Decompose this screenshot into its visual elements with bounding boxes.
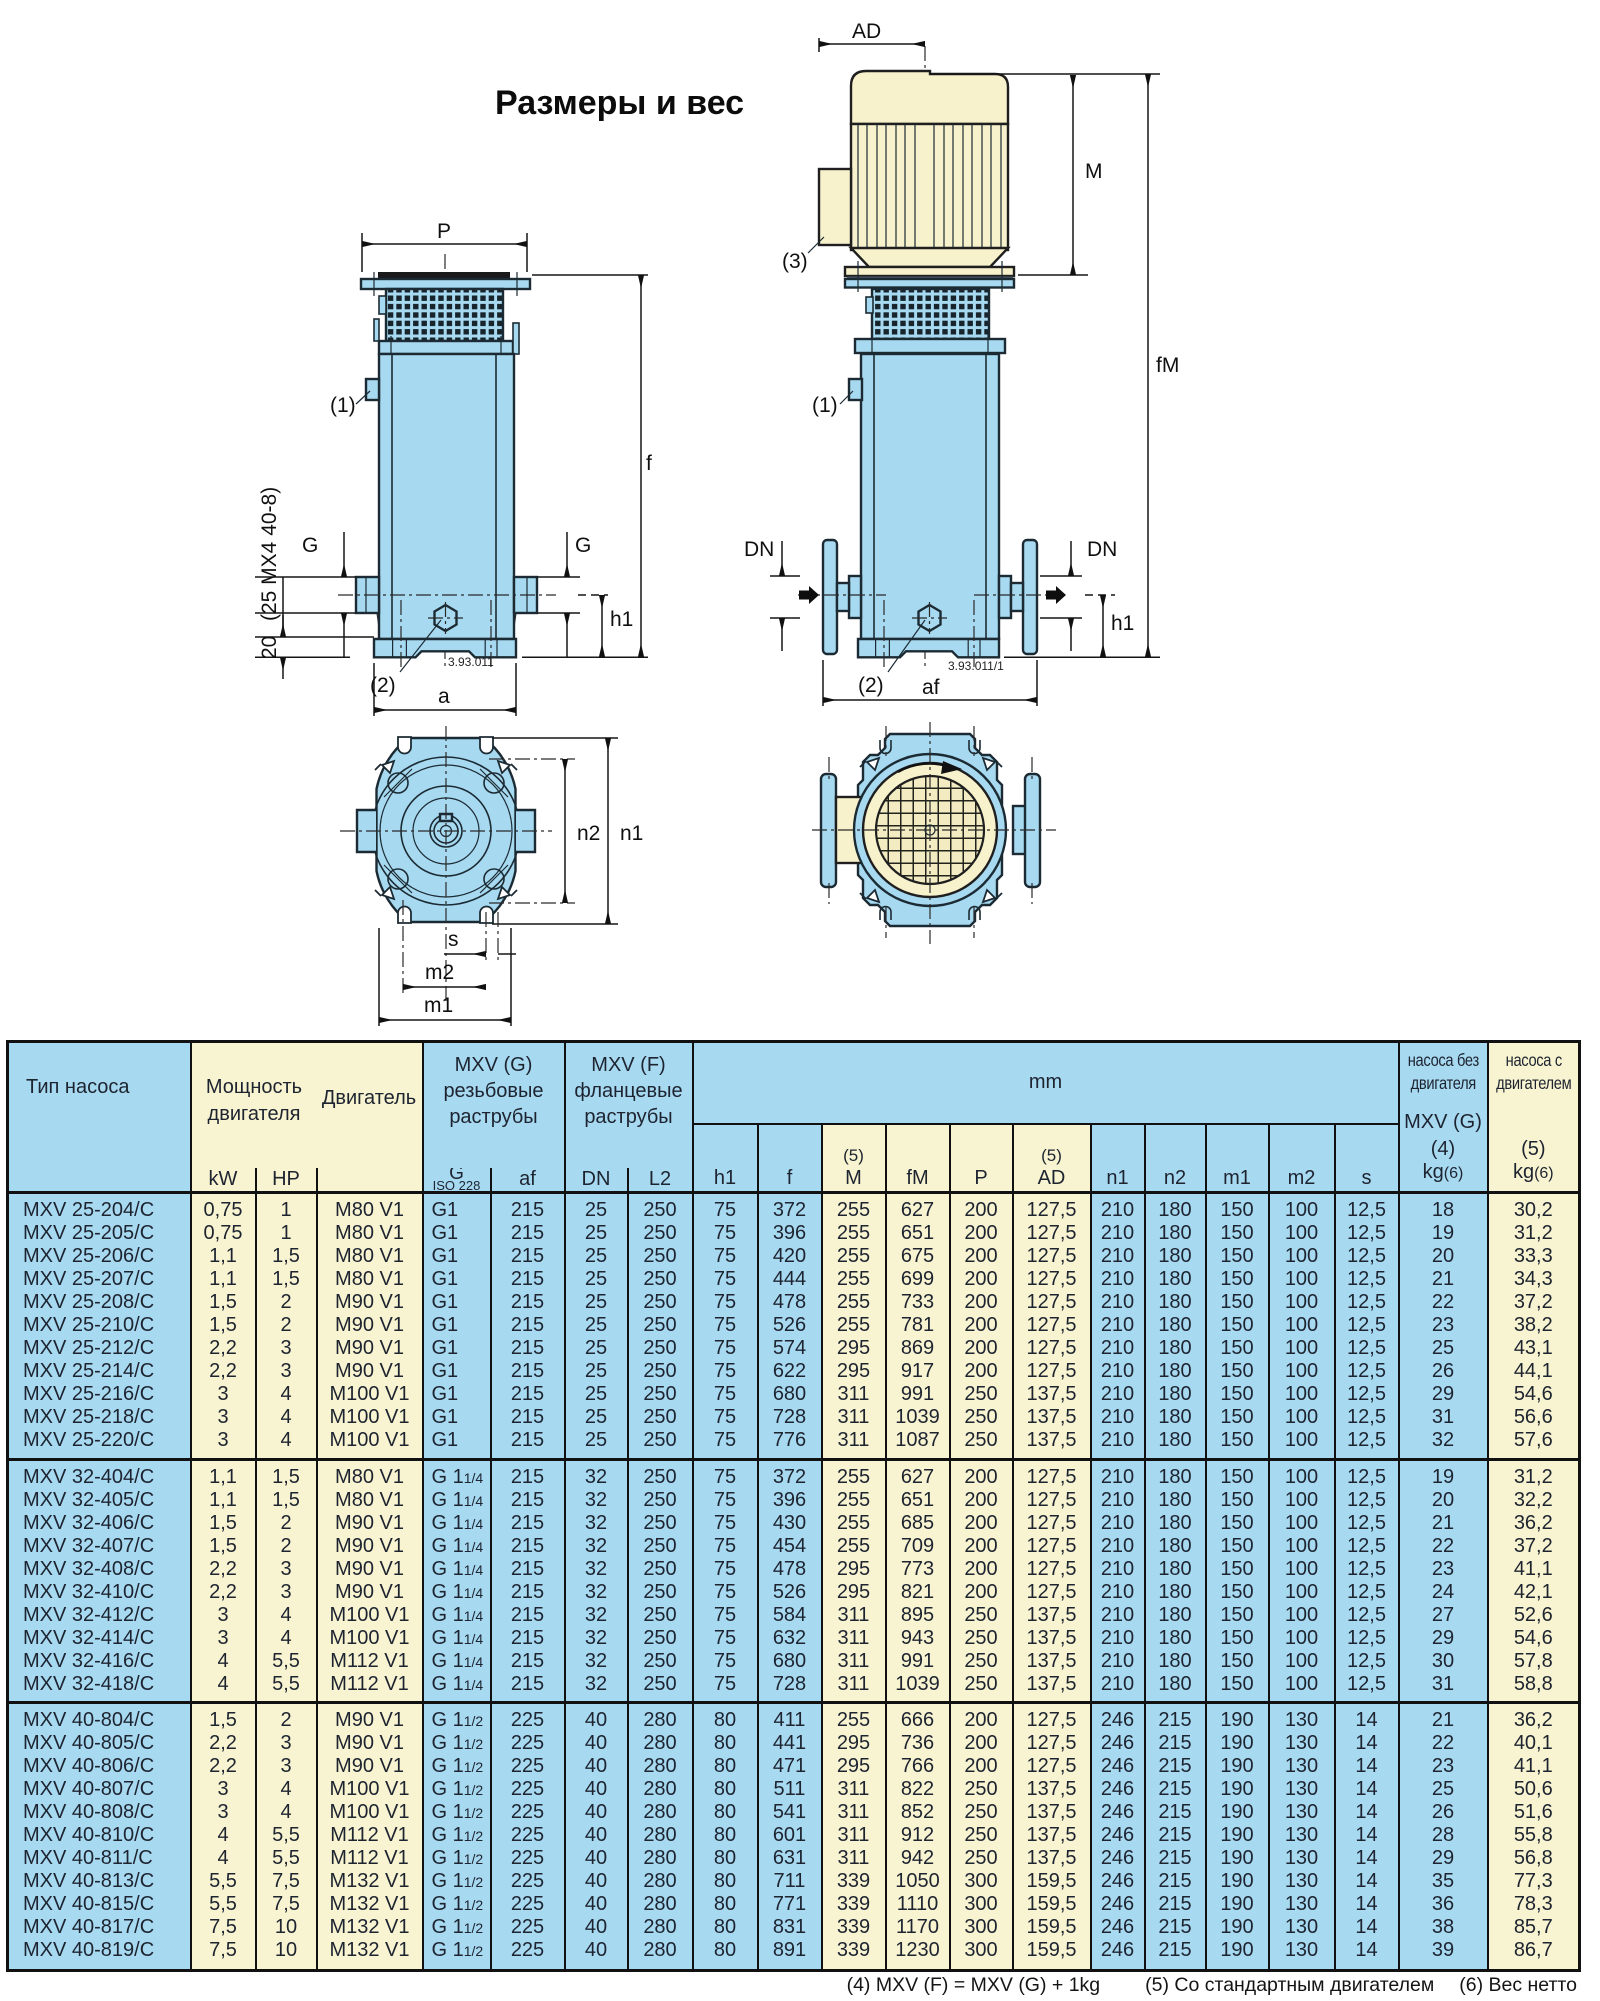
svg-text:fM: fM — [1156, 354, 1179, 377]
svg-text:n2: n2 — [577, 822, 600, 845]
svg-text:Размеры и вес: Размеры и вес — [495, 84, 744, 122]
svg-text:(2): (2) — [370, 674, 396, 697]
svg-text:af: af — [922, 676, 940, 699]
svg-text:AD: AD — [852, 20, 881, 43]
svg-text:G: G — [575, 534, 591, 557]
svg-text:20: 20 — [258, 636, 281, 659]
svg-text:3.93.011/1: 3.93.011/1 — [948, 659, 1004, 673]
svg-text:DN: DN — [1087, 538, 1117, 561]
svg-text:(1): (1) — [330, 394, 356, 417]
svg-text:DN: DN — [744, 538, 774, 561]
svg-text:(1): (1) — [812, 394, 838, 417]
svg-text:f: f — [646, 452, 652, 475]
svg-text:(25 MX4 40-8): (25 MX4 40-8) — [258, 487, 281, 621]
svg-text:m2: m2 — [425, 961, 454, 984]
svg-text:h1: h1 — [610, 608, 633, 631]
svg-text:h1: h1 — [1111, 612, 1134, 635]
svg-text:P: P — [437, 220, 451, 243]
svg-text:s: s — [448, 928, 459, 951]
svg-text:n1: n1 — [620, 822, 643, 845]
svg-text:3.93.011: 3.93.011 — [448, 655, 494, 669]
svg-text:(3): (3) — [782, 250, 808, 273]
svg-text:(2): (2) — [858, 674, 884, 697]
svg-text:m1: m1 — [424, 994, 453, 1017]
svg-text:G: G — [302, 534, 318, 557]
svg-text:a: a — [438, 685, 450, 708]
svg-text:M: M — [1085, 160, 1103, 183]
